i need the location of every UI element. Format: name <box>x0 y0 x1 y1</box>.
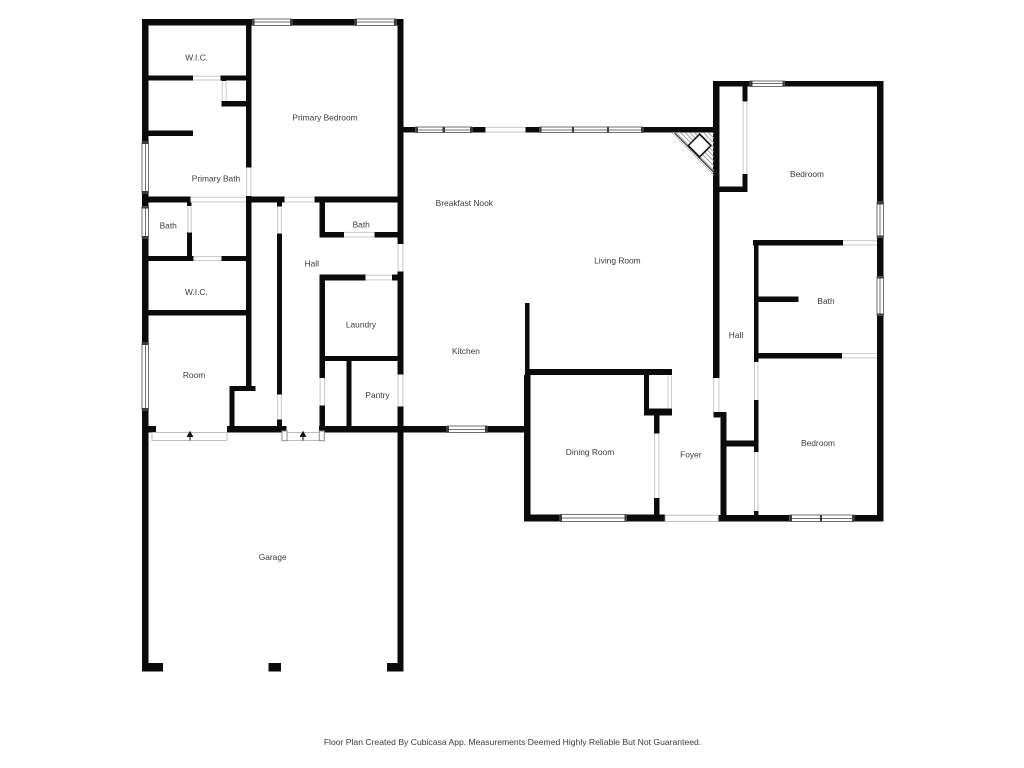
svg-text:Pantry: Pantry <box>365 390 390 400</box>
svg-text:Bath: Bath <box>817 296 835 306</box>
svg-text:Bedroom: Bedroom <box>790 169 824 179</box>
svg-text:Bath: Bath <box>160 221 178 231</box>
svg-text:Living Room: Living Room <box>594 256 641 266</box>
svg-text:Hall: Hall <box>305 259 320 269</box>
svg-text:Kitchen: Kitchen <box>452 346 480 356</box>
svg-text:Foyer: Foyer <box>680 450 702 460</box>
svg-text:Hall: Hall <box>729 330 744 340</box>
svg-text:Bath: Bath <box>353 219 371 229</box>
svg-text:W.I.C.: W.I.C. <box>185 287 208 297</box>
svg-text:Breakfast Nook: Breakfast Nook <box>436 198 494 208</box>
svg-text:Floor Plan Created By Cubicasa: Floor Plan Created By Cubicasa App. Meas… <box>324 737 701 747</box>
svg-text:Bedroom: Bedroom <box>801 438 835 448</box>
svg-text:Room: Room <box>183 370 205 380</box>
svg-text:Laundry: Laundry <box>346 320 377 330</box>
svg-text:Garage: Garage <box>259 552 287 562</box>
svg-text:Dining Room: Dining Room <box>566 447 614 457</box>
svg-text:W.I.C.: W.I.C. <box>185 52 208 62</box>
svg-text:Primary Bedroom: Primary Bedroom <box>292 113 357 123</box>
svg-text:Primary Bath: Primary Bath <box>192 174 241 184</box>
